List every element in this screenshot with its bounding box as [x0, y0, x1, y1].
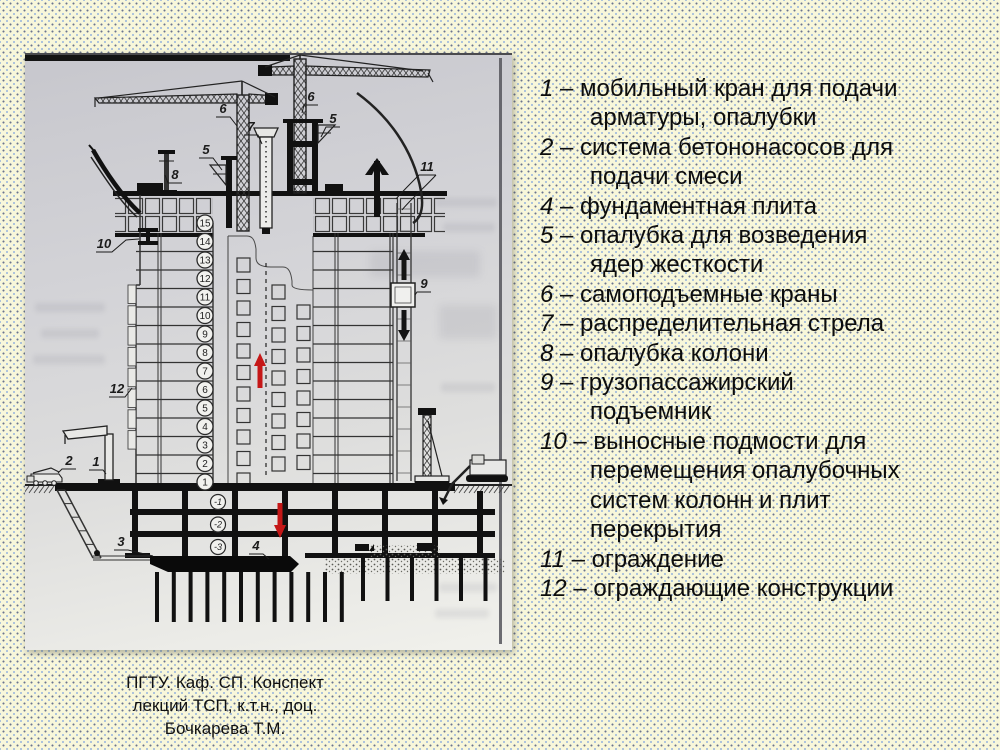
svg-text:15: 15	[199, 219, 211, 230]
enclosing-panels-12	[128, 285, 136, 449]
svg-text:3: 3	[202, 441, 208, 452]
floor-numbers: 151413121110987654321	[197, 215, 213, 490]
svg-text:13: 13	[199, 256, 211, 267]
svg-text:11: 11	[200, 293, 211, 304]
callout-11: 11	[420, 159, 434, 174]
legend-item: 2 – система бетононасосов дляподачи смес…	[590, 133, 996, 192]
ground-underground	[25, 483, 512, 622]
legend-item: 6 – самоподъемные краны	[590, 280, 996, 309]
soil-texture	[325, 558, 505, 574]
hoist-up-arrow	[398, 249, 410, 280]
legend-list: 1 – мобильный кран для подачиарматуры, о…	[540, 74, 996, 603]
svg-text:5: 5	[202, 404, 208, 415]
callout-12: 12	[110, 381, 125, 396]
callout-5b: 5	[329, 111, 337, 126]
svg-text:6: 6	[202, 385, 208, 396]
svg-text:12: 12	[199, 274, 211, 285]
concrete-pump-truck-2	[27, 468, 62, 485]
construction-diagram-photo: 151413121110987654321 -1-2-3	[25, 53, 512, 650]
hoist-9	[391, 203, 415, 481]
legend-item: 7 – распределительная стрела	[590, 309, 996, 338]
callout-6a: 6	[219, 101, 227, 116]
caption-line: лекций ТСП, к.т.н., доц.	[86, 694, 364, 717]
svg-text:-2: -2	[214, 520, 222, 530]
wind-screen-left	[89, 145, 140, 217]
callout-1: 1	[92, 454, 99, 469]
svg-text:-3: -3	[214, 542, 222, 552]
legend-item: 11 – ограждение	[590, 545, 996, 574]
caption-line: Бочкарева Т.М.	[86, 717, 364, 740]
svg-text:9: 9	[202, 330, 208, 341]
svg-text:7: 7	[202, 367, 208, 378]
legend-item: 9 – грузопассажирскийподъемник	[590, 368, 996, 427]
red-arrow-up	[254, 353, 266, 388]
svg-text:10: 10	[199, 311, 211, 322]
legend-item: 12 – ограждающие конструкции	[590, 574, 996, 603]
hoist-down-arrow	[398, 310, 410, 341]
mini-loader	[417, 543, 433, 551]
legend-item: 10 – выносные подмости дляперемещения оп…	[590, 427, 996, 545]
svg-text:2: 2	[202, 459, 208, 470]
basement-numbers: -1-2-3	[211, 495, 226, 555]
caption-line: ПГТУ. Каф. СП. Конспект	[86, 671, 364, 694]
callout-8: 8	[171, 167, 179, 182]
callout-4: 4	[251, 538, 260, 553]
excavation-ramp	[57, 490, 93, 558]
legend-item: 1 – мобильный кран для подачиарматуры, о…	[590, 74, 996, 133]
callout-5a: 5	[202, 142, 210, 157]
tower-crane-right	[258, 55, 433, 193]
callout-2: 2	[64, 453, 73, 468]
foundation-slab-4	[150, 556, 299, 572]
svg-text:8: 8	[202, 348, 208, 359]
callout-3: 3	[117, 534, 125, 549]
diagram-drawing: 151413121110987654321 -1-2-3	[25, 53, 512, 650]
slide-background: 151413121110987654321 -1-2-3	[0, 0, 1000, 750]
callout-6b: 6	[307, 89, 315, 104]
distribution-boom	[254, 128, 278, 234]
legend-item: 5 – опалубка для возведенияядер жесткост…	[590, 221, 996, 280]
svg-text:-1: -1	[214, 497, 222, 507]
mini-dozer	[355, 544, 369, 551]
callout-9: 9	[420, 276, 428, 291]
building-frame	[128, 195, 393, 487]
legend-item: 8 – опалубка колони	[590, 339, 996, 368]
slide-caption: ПГТУ. Каф. СП. Конспект лекций ТСП, к.т.…	[86, 671, 364, 740]
svg-text:4: 4	[202, 422, 208, 433]
svg-text:14: 14	[199, 237, 211, 248]
legend-item: 4 – фундаментная плита	[590, 192, 996, 221]
callout-10: 10	[97, 236, 112, 251]
svg-text:1: 1	[202, 478, 208, 489]
callout-7: 7	[247, 119, 255, 134]
drill-rig	[415, 408, 449, 484]
